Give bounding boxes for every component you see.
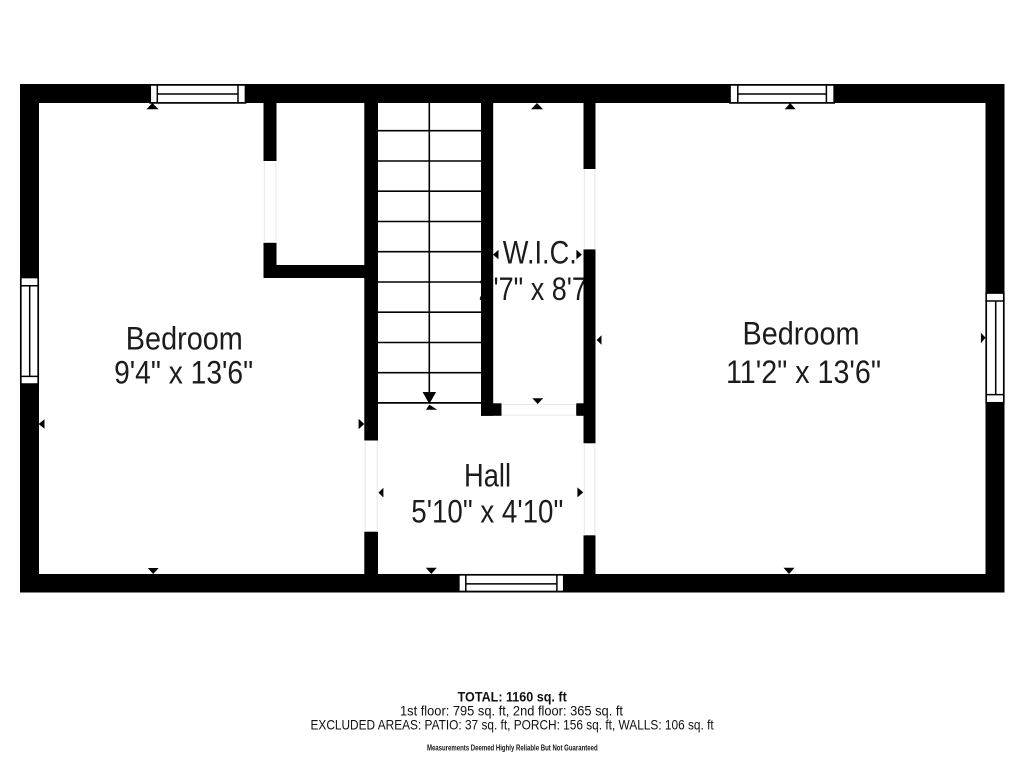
svg-text:2'7" x 8'7": 2'7" x 8'7" [479,271,597,307]
svg-text:Hall: Hall [464,458,511,494]
svg-text:Bedroom: Bedroom [126,321,243,357]
svg-text:11'2" x 13'6": 11'2" x 13'6" [726,354,881,390]
svg-text:5'10" x 4'10": 5'10" x 4'10" [411,494,563,530]
svg-text:EXCLUDED AREAS: PATIO: 37 sq.: EXCLUDED AREAS: PATIO: 37 sq. ft, PORCH:… [311,717,714,733]
svg-text:Measurements Deemed Highly Rel: Measurements Deemed Highly Reliable But … [427,743,598,752]
svg-text:Bedroom: Bedroom [743,316,860,352]
svg-text:9'4" x 13'6": 9'4" x 13'6" [114,355,253,391]
svg-text:W.I.C.: W.I.C. [503,235,577,271]
